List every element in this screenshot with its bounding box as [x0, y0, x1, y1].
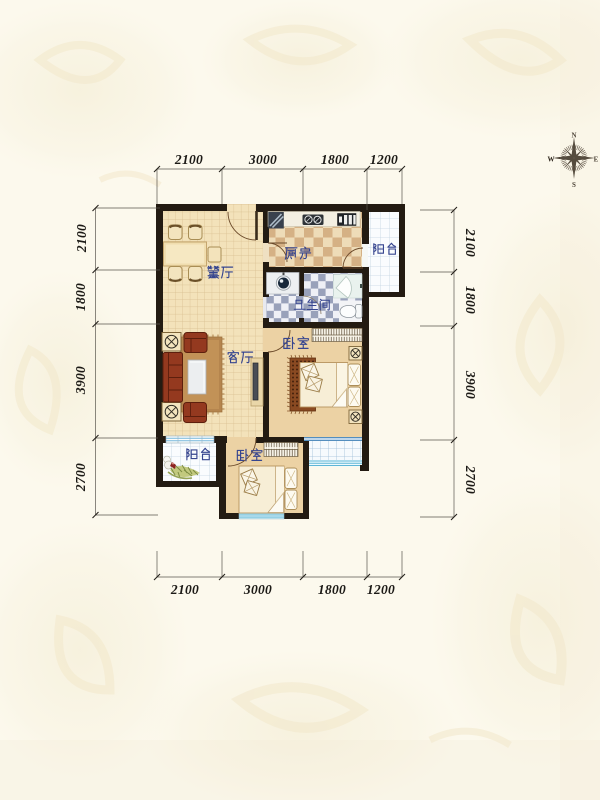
svg-text:3000: 3000 [243, 582, 272, 597]
svg-text:2700: 2700 [73, 463, 88, 492]
svg-text:3000: 3000 [248, 152, 277, 167]
svg-text:1800: 1800 [321, 152, 349, 167]
svg-text:1200: 1200 [370, 152, 398, 167]
svg-text:2100: 2100 [174, 152, 203, 167]
svg-text:2100: 2100 [74, 224, 89, 253]
svg-text:2700: 2700 [463, 465, 478, 494]
svg-text:3900: 3900 [73, 366, 88, 395]
svg-text:1800: 1800 [73, 283, 88, 311]
svg-text:2100: 2100 [463, 228, 478, 257]
svg-text:2100: 2100 [170, 582, 199, 597]
svg-text:1200: 1200 [367, 582, 395, 597]
svg-text:W: W [548, 156, 555, 164]
svg-text:3900: 3900 [463, 370, 478, 399]
svg-text:1800: 1800 [463, 286, 478, 314]
svg-text:1800: 1800 [318, 582, 346, 597]
